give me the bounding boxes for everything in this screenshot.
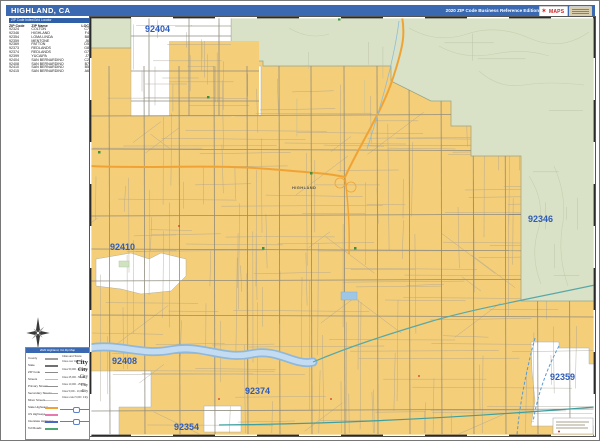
header-bar: HIGHLAND, CA 2020 ZIP Code Business Refe… [6, 5, 595, 16]
map-legend: 2020 Highland, CA Zip Map County State Z… [25, 347, 90, 440]
legend-title: 2020 Highland, CA Zip Map [26, 348, 89, 353]
map-page: HIGHLAND, CA 2020 ZIP Code Business Refe… [0, 0, 600, 441]
zip-label-92354: 92354 [174, 422, 199, 432]
map-svg [89, 16, 596, 437]
zip-label-92410: 92410 [110, 242, 135, 252]
legend-city-item: Cities 50,000 - 100,000City [62, 367, 89, 375]
page-title: HIGHLAND, CA [11, 6, 70, 15]
zip-label-92346: 92346 [528, 214, 553, 224]
logo-info-line [572, 9, 589, 10]
map-canvas [89, 16, 596, 437]
logo-info-line [572, 13, 589, 14]
legend-city-item: Cities 25,000 - 50,000City [62, 375, 89, 382]
highway-shield-sample [60, 406, 89, 414]
logo-brand-text: MAPS [549, 9, 564, 15]
logo-info-line [572, 11, 589, 12]
legend-city-item: Cities over 100,000City [62, 359, 89, 367]
city-label-highland: HIGHLAND [292, 185, 316, 190]
legend-city-item: Cities under 5,000City [62, 395, 89, 401]
edition-label: 2020 ZIP Code Business Reference Edition [446, 8, 539, 13]
legend-cities-header: Cities and Towns [62, 355, 82, 358]
zip-label-92359: 92359 [550, 372, 575, 382]
compass-rose-icon [25, 316, 51, 350]
zip-label-92408: 92408 [112, 356, 137, 366]
table-row: 92415SAN BERNARDINOA6 [9, 70, 89, 74]
zip-label-92374: 92374 [245, 386, 270, 396]
logo-star-icon: ✶ [541, 7, 547, 15]
copyright-box [553, 418, 593, 434]
zip-index-title: ZIP Code Index/Grid Locator [9, 18, 89, 23]
zip-index-panel: ZIP Code Index/Grid Locator ZIP Code ZIP… [9, 18, 89, 74]
zip-label-92404: 92404 [145, 24, 170, 34]
highway-shield-sample [60, 418, 89, 426]
zip-index-table: ZIP Code ZIP Name LOC 92324COLTONC7 9234… [9, 24, 89, 74]
legend-city-item: Cities 10,000 - 25,000City [62, 382, 89, 389]
